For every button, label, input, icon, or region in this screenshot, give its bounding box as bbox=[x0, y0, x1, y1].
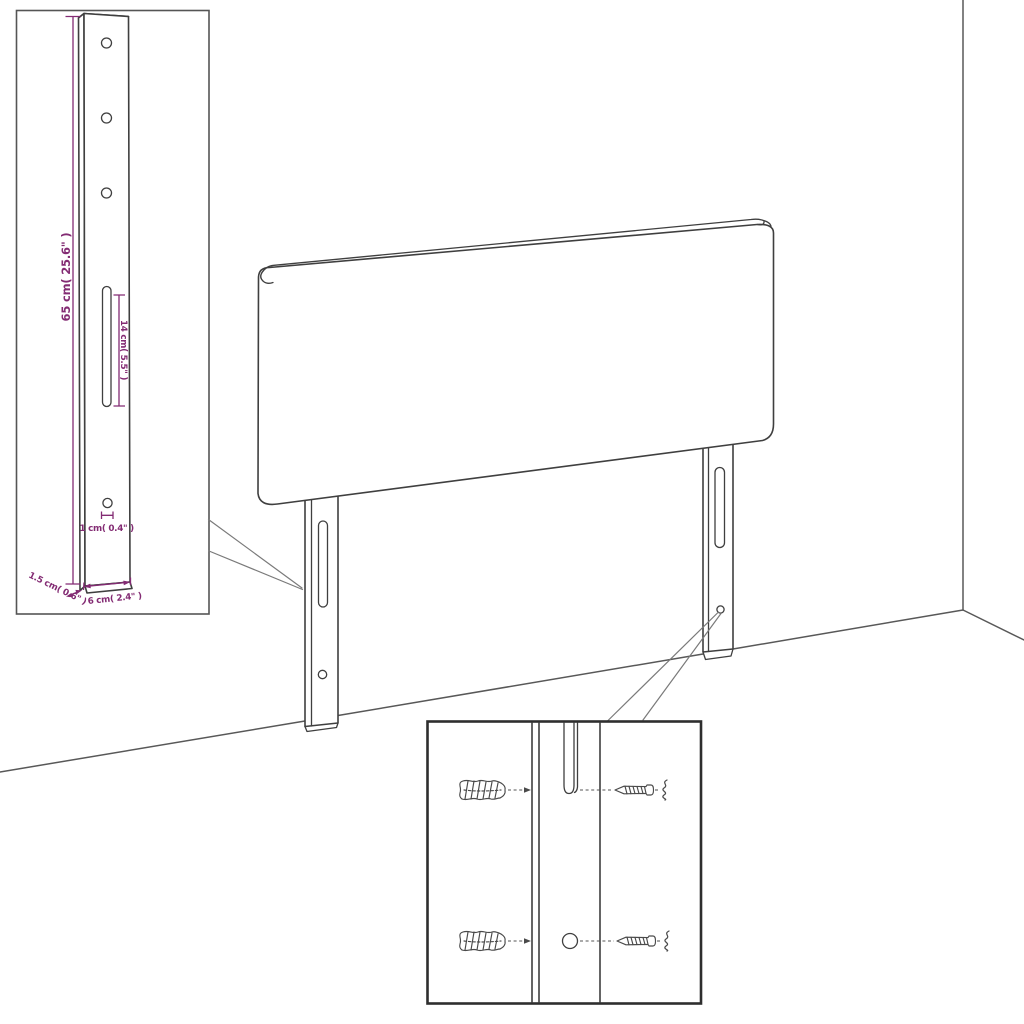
right-mounting-leg bbox=[703, 439, 733, 660]
leg-detail-inset: 65 cm( 25.6" ) 14 cm( 5.5" ) 1 cm( 0.4" … bbox=[17, 11, 210, 615]
floor-line-right-wall bbox=[963, 610, 1024, 640]
hardware-callout-line-right bbox=[643, 614, 721, 721]
floor-line-right-segment bbox=[733, 610, 963, 649]
inset-leg-drawing bbox=[79, 14, 133, 594]
hardware-detail-box bbox=[428, 722, 702, 1004]
panel-outline bbox=[258, 224, 774, 504]
dimension-label-hole-diameter: 1 cm( 0.4" ) bbox=[80, 524, 135, 534]
leg-front-face bbox=[84, 14, 130, 587]
inset-callout-line-lower bbox=[209, 551, 303, 590]
headboard-diagram: 65 cm( 25.6" ) 14 cm( 5.5" ) 1 cm( 0.4" … bbox=[0, 0, 1024, 1024]
floor-line-middle-segment bbox=[338, 654, 703, 716]
dimension-label-slot-length: 14 cm( 5.5" ) bbox=[118, 320, 128, 380]
left-mounting-leg bbox=[305, 489, 338, 732]
left-leg-body bbox=[305, 489, 338, 727]
diagram-canvas: 65 cm( 25.6" ) 14 cm( 5.5" ) 1 cm( 0.4" … bbox=[0, 0, 1024, 1024]
floor-line-left-segment bbox=[0, 721, 305, 772]
panel-roll-right-curl bbox=[758, 221, 765, 225]
inset-callout-line-upper bbox=[209, 520, 303, 589]
headboard-panel bbox=[258, 219, 774, 504]
dimension-label-leg-height: 65 cm( 25.6" ) bbox=[59, 233, 73, 322]
hardware-callout-line-left bbox=[608, 612, 719, 721]
right-leg-body bbox=[703, 439, 733, 652]
